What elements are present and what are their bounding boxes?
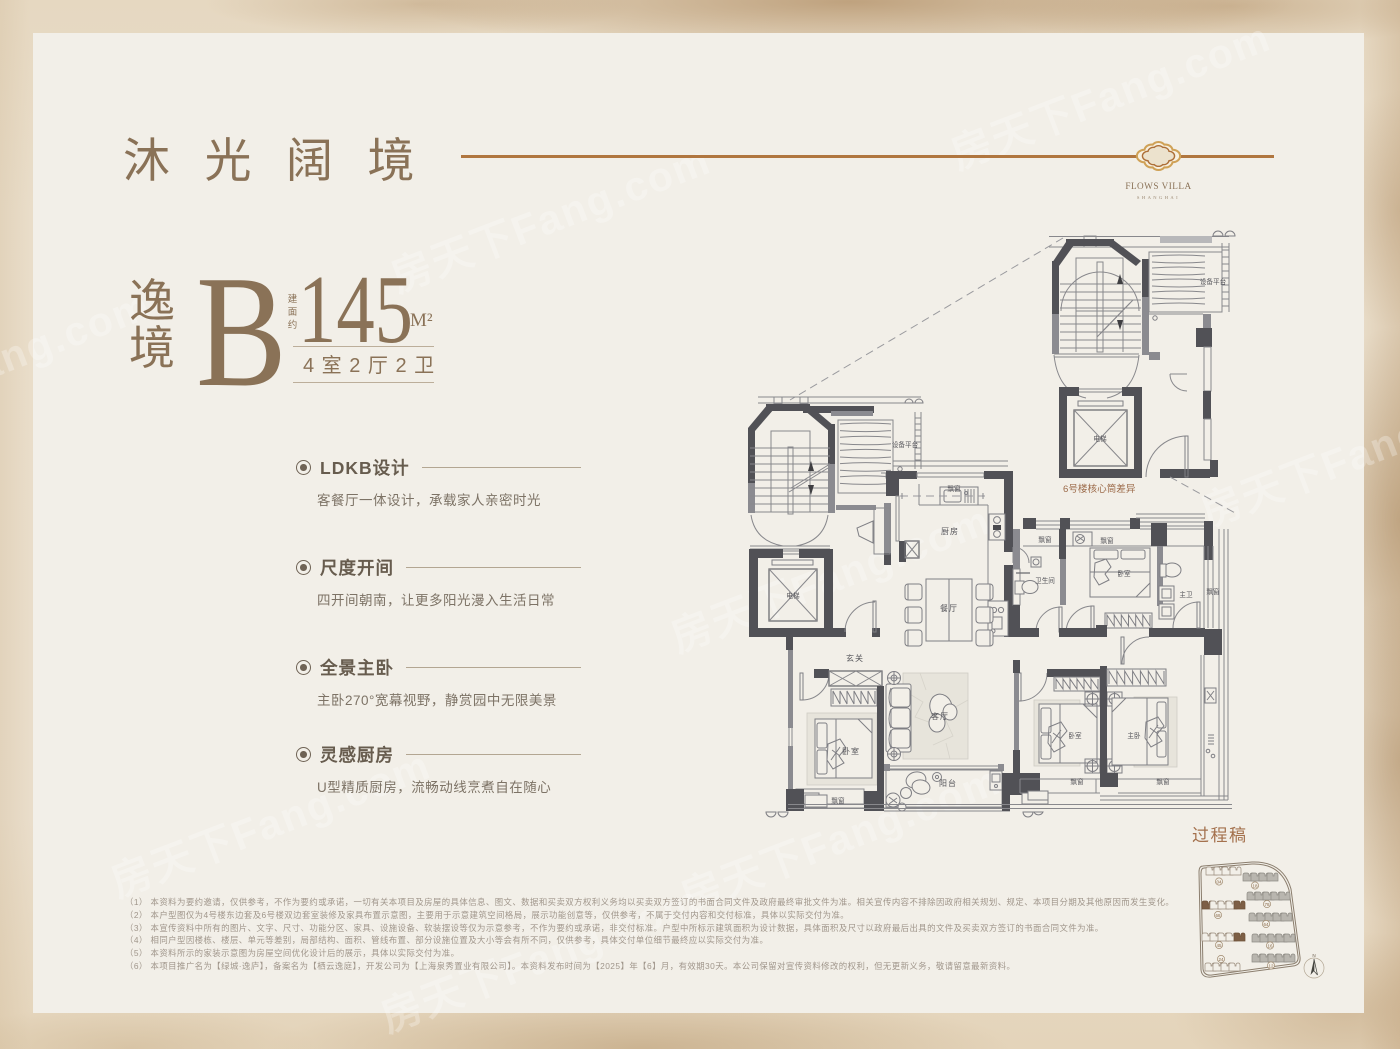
svg-text:主卧: 主卧	[1127, 731, 1141, 740]
svg-text:主卫: 主卫	[1179, 590, 1193, 599]
svg-text:FLOWS VILLA: FLOWS VILLA	[1125, 181, 1191, 191]
svg-text:04: 04	[1216, 879, 1222, 884]
svg-text:飘窗: 飘窗	[1100, 536, 1114, 545]
svg-text:18: 18	[1252, 883, 1258, 888]
svg-text:设备平台: 设备平台	[892, 440, 919, 449]
svg-text:卧室: 卧室	[842, 746, 860, 756]
svg-text:卧室: 卧室	[1068, 731, 1082, 740]
svg-text:SHANGHAI: SHANGHAI	[1137, 195, 1180, 200]
svg-text:阳台: 阳台	[939, 778, 957, 788]
svg-text:12: 12	[1268, 963, 1274, 968]
svg-text:N: N	[1312, 953, 1315, 958]
svg-text:16: 16	[1267, 943, 1273, 948]
svg-text:电梯: 电梯	[1093, 434, 1107, 443]
svg-text:64: 64	[1263, 922, 1269, 927]
svg-text:45: 45	[1216, 943, 1222, 948]
svg-text:电梯: 电梯	[786, 591, 800, 600]
svg-text:卫生间: 卫生间	[1035, 576, 1055, 585]
svg-text:客厅: 客厅	[931, 711, 949, 721]
svg-text:飘窗: 飘窗	[1070, 777, 1084, 786]
svg-text:设备平台: 设备平台	[1200, 277, 1227, 286]
svg-text:飘窗: 飘窗	[831, 796, 845, 805]
svg-text:餐厅: 餐厅	[940, 604, 958, 613]
svg-text:飘窗: 飘窗	[947, 484, 961, 493]
svg-text:68: 68	[1215, 913, 1221, 918]
svg-text:飘窗: 飘窗	[1206, 587, 1220, 596]
svg-text:厨房: 厨房	[941, 526, 959, 536]
svg-text:飘窗: 飘窗	[1038, 535, 1052, 544]
svg-text:24: 24	[1218, 957, 1224, 962]
svg-text:飘窗: 飘窗	[1156, 777, 1170, 786]
svg-text:78: 78	[1264, 902, 1270, 907]
svg-text:6号楼核心筒差异: 6号楼核心筒差异	[1063, 483, 1136, 495]
svg-text:玄关: 玄关	[846, 653, 864, 663]
svg-text:卧室: 卧室	[1117, 569, 1131, 578]
